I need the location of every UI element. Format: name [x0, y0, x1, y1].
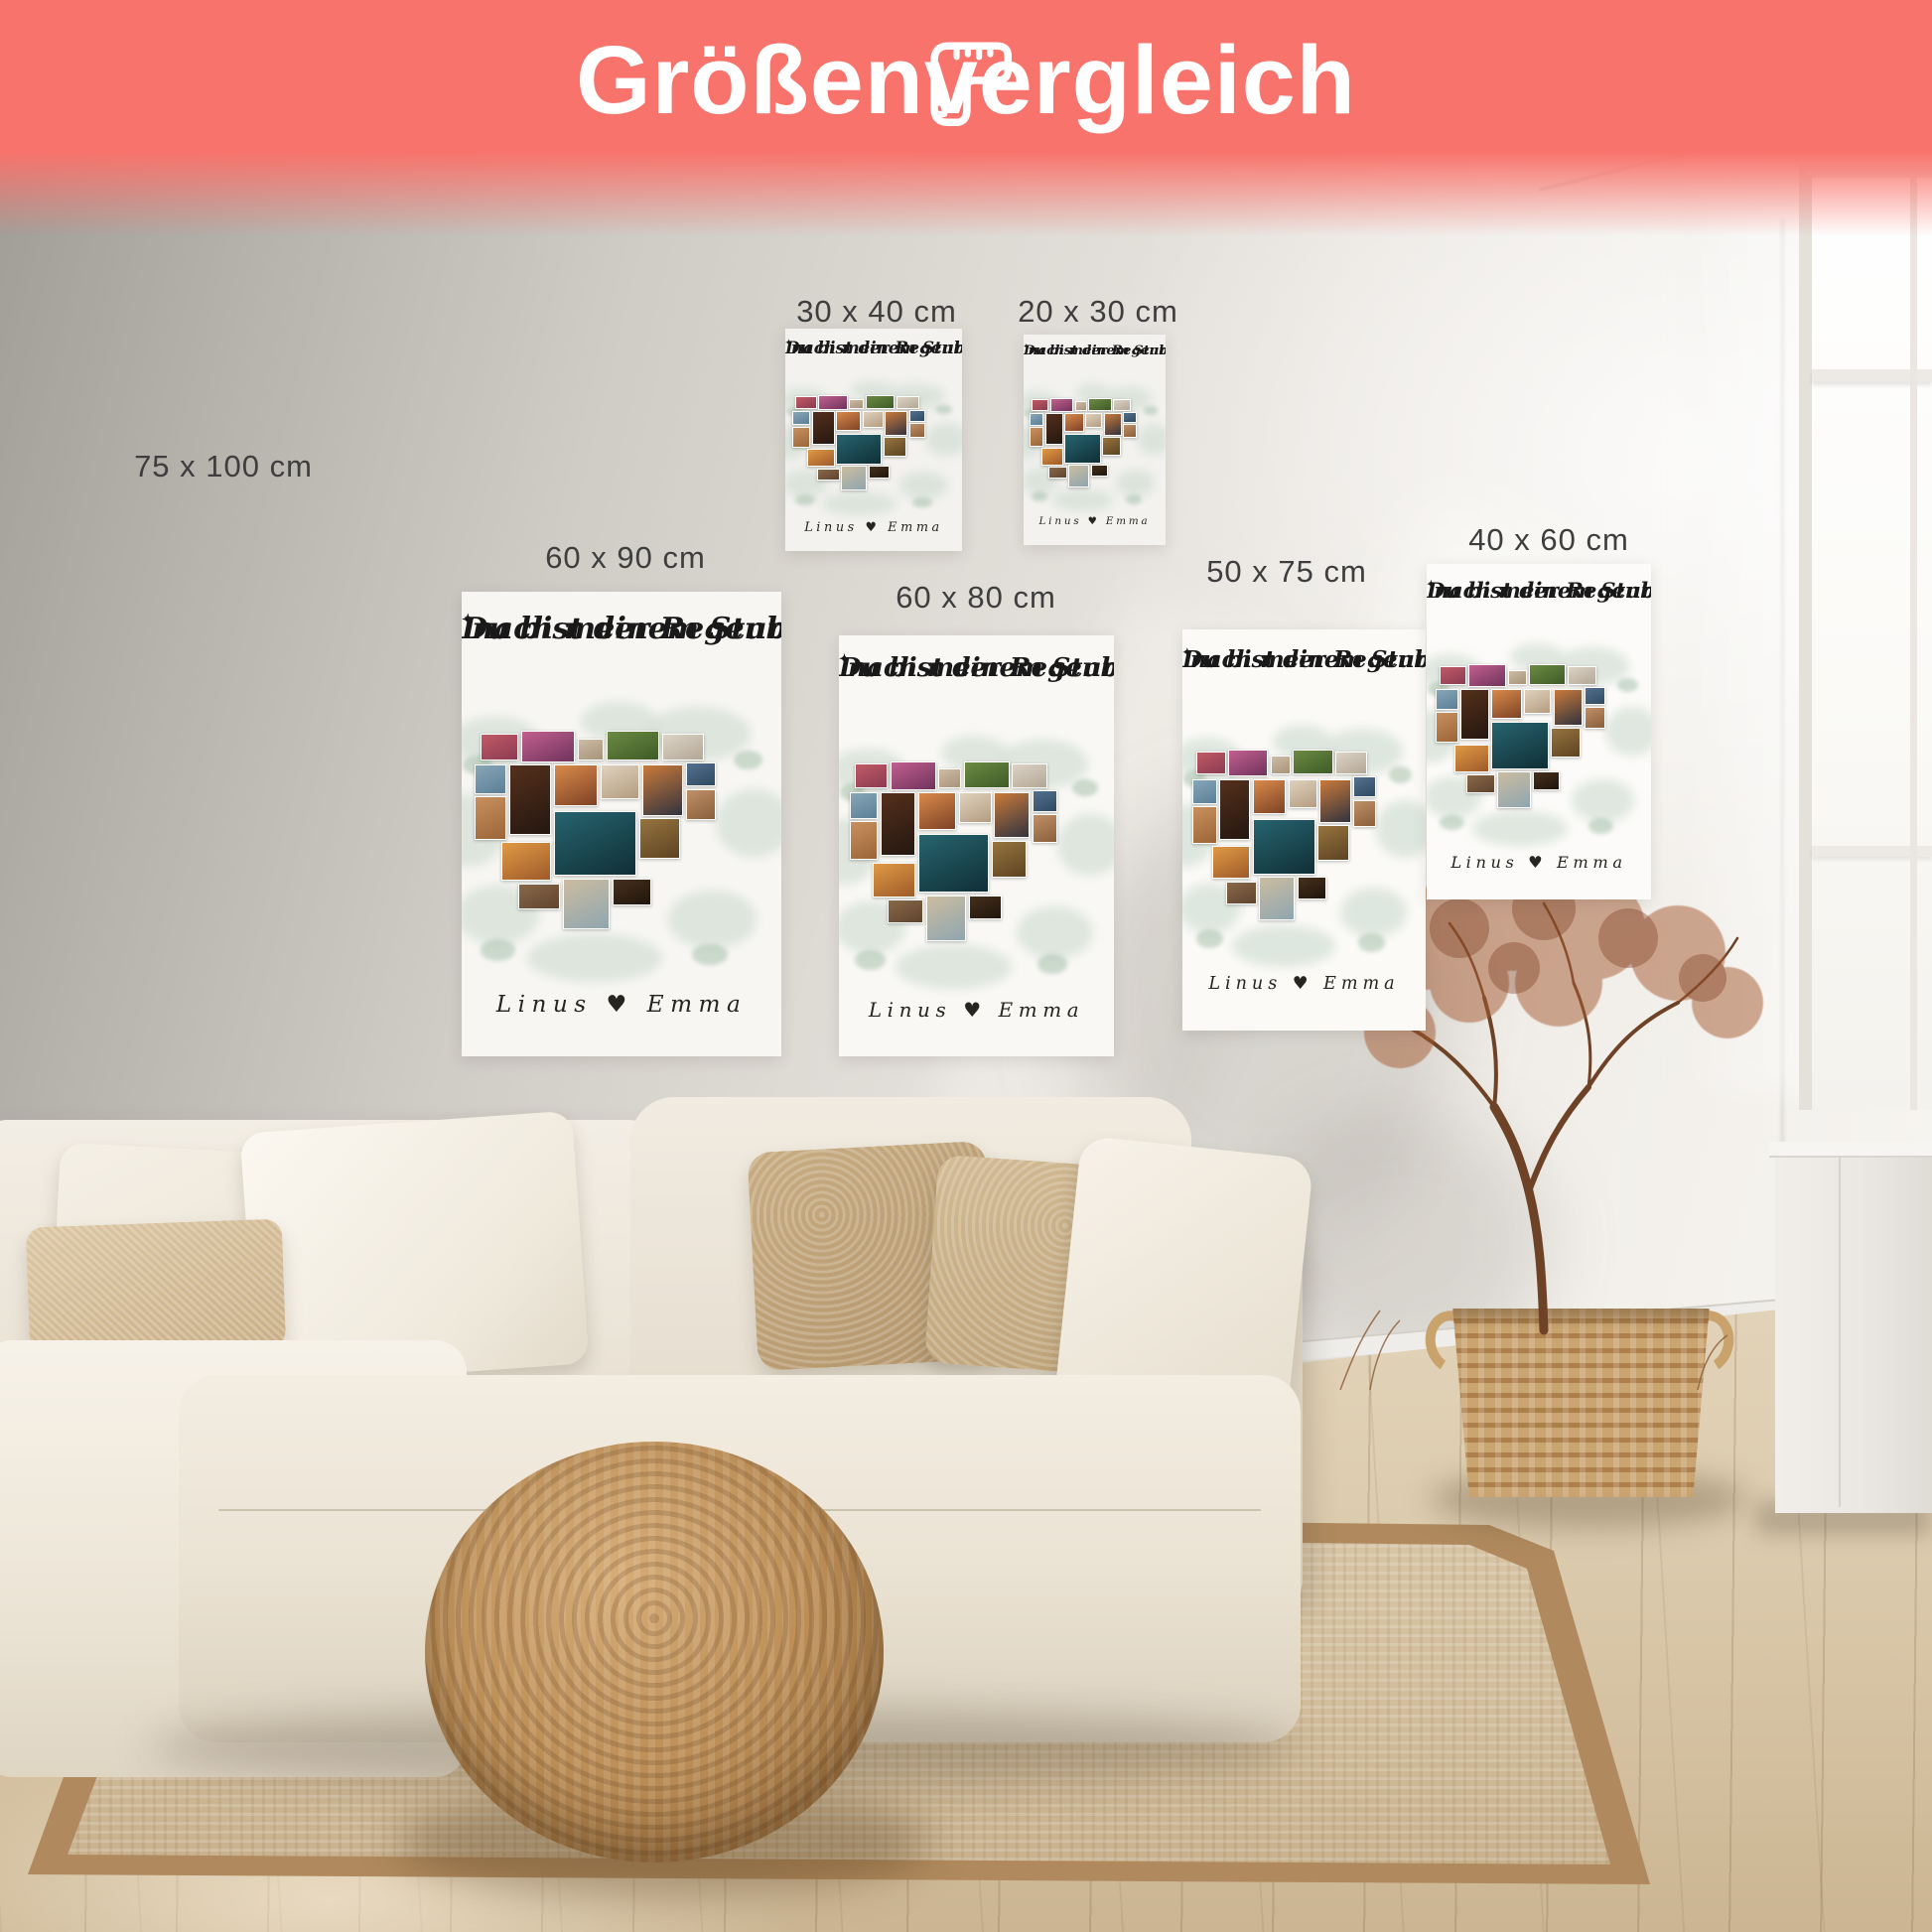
collage-photo-tile	[1196, 752, 1225, 774]
collage-photo-tile	[1088, 398, 1112, 411]
collage-photo-tile	[1585, 707, 1605, 730]
collage-photo-tile	[1068, 465, 1089, 487]
collage-photo-tile	[1440, 666, 1466, 685]
collage-photo-tile	[1030, 413, 1043, 426]
poster-names: Linus ♥ Emma	[1182, 974, 1426, 994]
collage-photo-tile	[1253, 819, 1315, 876]
collage-photo-tile	[918, 834, 989, 894]
collage-photo-tile	[807, 449, 835, 468]
collage-photo-tile	[836, 434, 882, 465]
collage-photo-tile	[662, 734, 703, 760]
collage-photo-tile	[686, 789, 716, 821]
collage-photo-tile	[818, 395, 847, 410]
collage-photo-tile	[1033, 814, 1057, 843]
collage-photo-tile	[1050, 398, 1074, 412]
size-label-60x80: 60 x 80 cm	[896, 580, 1056, 616]
collage-photo-tile	[521, 731, 574, 762]
collage-photo-tile	[792, 427, 810, 448]
collage-photo-tile	[1524, 689, 1551, 714]
collage-photo-tile	[601, 764, 639, 798]
wreath-blob	[1116, 470, 1155, 495]
collage-photo-tile	[909, 410, 925, 422]
wreath-leaf	[1617, 678, 1638, 692]
collage-photo-tile	[1033, 790, 1057, 812]
collage-photo-tile	[613, 879, 651, 905]
collage-photo-tile	[1436, 712, 1458, 744]
size-label-60x90: 60 x 90 cm	[545, 540, 706, 576]
size-label-20x30: 20 x 30 cm	[1018, 294, 1178, 330]
collage-photo-tile	[994, 792, 1030, 838]
banner-title: Größenvergleich	[576, 25, 1356, 136]
collage-photo-tile	[1293, 750, 1333, 774]
heart-photo-collage	[1192, 750, 1416, 958]
collage-photo-tile	[475, 796, 507, 840]
collage-photo-tile	[1091, 465, 1108, 477]
collage-photo-tile	[855, 763, 888, 787]
collage-photo-tile	[1259, 877, 1295, 920]
size-label-40x60: 40 x 60 cm	[1468, 522, 1629, 558]
collage-photo-tile	[863, 411, 884, 427]
wreath-blob	[1376, 800, 1426, 859]
collage-photo-tile	[475, 764, 507, 793]
wreath-leaf	[1037, 954, 1068, 974]
collage-photo-tile	[1032, 399, 1048, 411]
collage-photo-tile	[1219, 779, 1251, 840]
collage-photo-tile	[563, 879, 610, 929]
wreath-blob	[1052, 489, 1113, 511]
wreath-blob	[1232, 925, 1335, 967]
wreath-blob	[1472, 811, 1568, 846]
collage-photo-tile	[481, 734, 519, 760]
collage-photo-tile	[1551, 728, 1580, 758]
collage-photo-tile	[850, 792, 878, 818]
wreath-leaf	[692, 944, 728, 966]
wreath-leaf	[795, 494, 815, 504]
heart-photo-collage	[475, 731, 768, 972]
collage-photo-tile	[1585, 687, 1605, 705]
collage-photo-tile	[1460, 689, 1489, 740]
collage-photo-tile	[1491, 722, 1549, 768]
collage-photo-tile	[918, 792, 956, 829]
sparkle-icon: ✦	[1182, 645, 1192, 660]
collage-photo-tile	[888, 899, 923, 923]
collage-photo-tile	[1123, 424, 1136, 438]
banner-content: Größenvergleich	[0, 0, 1932, 161]
collage-photo-tile	[1298, 877, 1326, 899]
collage-photo-tile	[841, 466, 867, 489]
collage-photo-tile	[1228, 750, 1269, 776]
collage-photo-tile	[1113, 399, 1131, 411]
collage-photo-tile	[866, 395, 895, 409]
collage-photo-tile	[1529, 664, 1566, 685]
wreath-leaf	[1144, 406, 1157, 415]
collage-photo-tile	[926, 896, 967, 941]
collage-photo-tile	[1436, 689, 1458, 710]
collage-photo-tile	[607, 731, 659, 759]
wreath-leaf	[1588, 818, 1613, 834]
collage-photo-tile	[1466, 774, 1495, 793]
collage-photo-tile	[686, 762, 716, 786]
wreath-leaf	[1358, 933, 1385, 952]
collage-photo-tile	[938, 768, 961, 788]
collage-photo-tile	[1289, 779, 1317, 808]
collage-photo-tile	[992, 841, 1028, 878]
heart-photo-collage	[850, 761, 1103, 980]
collage-photo-tile	[897, 396, 919, 409]
sparkle-icon: ✦	[1024, 343, 1030, 351]
sparkle-icon: ✦	[462, 611, 475, 629]
collage-photo-tile	[1102, 437, 1120, 456]
poster-title-line2: ✦ nach meinem Sturm ♥✦	[1427, 578, 1651, 605]
collage-photo-tile	[873, 863, 915, 897]
posters-layer: 75 x 100 cm30 x 40 cmDu bist der Regenbo…	[0, 0, 1932, 1932]
collage-photo-tile	[554, 764, 598, 805]
heart-photo-collage	[792, 395, 955, 510]
sparkle-icon: ✦	[785, 338, 792, 348]
size-comparison-banner: Größenvergleich	[0, 0, 1932, 236]
poster-names: Linus ♥ Emma	[1024, 515, 1166, 527]
collage-photo-tile	[959, 792, 992, 823]
wreath-leaf	[481, 939, 516, 961]
poster-title-line2: ✦ nach meinem Sturm ♥✦	[1182, 645, 1426, 674]
wreath-blob	[716, 789, 781, 857]
collage-photo-tile	[642, 764, 683, 815]
poster-names: Linus ♥ Emma	[785, 520, 962, 535]
collage-photo-tile	[1508, 670, 1527, 686]
poster-names: Linus ♥ Emma	[839, 998, 1114, 1022]
wreath-blob	[668, 891, 757, 948]
collage-photo-tile	[1045, 413, 1063, 445]
collage-photo-tile	[1226, 882, 1258, 904]
collage-photo-tile	[1491, 689, 1522, 719]
collage-photo-tile	[1104, 413, 1122, 436]
collage-photo-tile	[509, 764, 550, 835]
collage-photo-tile	[849, 399, 864, 409]
collage-photo-tile	[518, 884, 559, 910]
wreath-leaf	[1389, 766, 1412, 783]
collage-photo-tile	[1212, 846, 1250, 880]
collage-photo-tile	[1064, 434, 1101, 464]
wreath-blob	[1017, 906, 1092, 959]
poster-30x40: Du bist der Regenbogen✦✦ nach meinem Stu…	[785, 329, 962, 551]
collage-photo-tile	[836, 411, 861, 431]
collage-photo-tile	[1271, 756, 1291, 774]
wreath-leaf	[1126, 494, 1142, 504]
poster-names: Linus ♥ Emma	[462, 991, 781, 1018]
wreath-leaf	[1196, 929, 1223, 948]
collage-photo-tile	[881, 792, 916, 856]
poster-title-line2: ✦ nach meinem Sturm ♥✦	[462, 611, 781, 649]
wreath-leaf	[912, 497, 932, 507]
collage-photo-tile	[795, 396, 816, 409]
size-label-30x40: 30 x 40 cm	[796, 294, 957, 330]
wreath-blob	[822, 492, 897, 515]
poster-title-line2: ✦ nach meinem Sturm ♥✦	[1024, 343, 1166, 359]
collage-photo-tile	[1497, 771, 1530, 808]
wreath-blob	[1572, 779, 1633, 821]
collage-photo-tile	[1353, 776, 1376, 797]
collage-photo-tile	[1012, 763, 1047, 787]
poster-20x30: Du bist der Regenbogen✦✦ nach meinem Stu…	[1024, 335, 1166, 545]
heart-photo-collage	[1436, 664, 1642, 839]
collage-photo-tile	[1075, 401, 1087, 411]
collage-photo-tile	[1253, 779, 1287, 815]
collage-photo-tile	[578, 739, 605, 760]
collage-photo-tile	[1533, 771, 1560, 790]
collage-photo-tile	[1335, 752, 1367, 774]
collage-photo-tile	[792, 411, 810, 425]
heart-photo-collage	[1030, 398, 1161, 507]
collage-photo-tile	[891, 761, 936, 790]
wreath-leaf	[1440, 815, 1464, 831]
collage-photo-tile	[1064, 413, 1084, 432]
wreath-blob	[1137, 424, 1166, 455]
collage-photo-tile	[1454, 745, 1489, 772]
collage-photo-tile	[1030, 427, 1043, 447]
collage-photo-tile	[964, 761, 1010, 787]
collage-photo-tile	[554, 811, 636, 877]
wreath-leaf	[1072, 779, 1097, 797]
wreath-leaf	[1032, 491, 1047, 501]
collage-photo-tile	[1317, 825, 1349, 861]
wreath-blob	[899, 472, 948, 499]
wreath-blob	[1057, 814, 1114, 876]
collage-photo-tile	[501, 842, 551, 881]
size-comparison-scene: 75 x 100 cm30 x 40 cmDu bist der Regenbo…	[0, 0, 1932, 1932]
collage-photo-tile	[812, 411, 835, 445]
poster-60x80: Du bist der Regenbogen✦✦ nach meinem Stu…	[839, 635, 1114, 1056]
collage-photo-tile	[1123, 412, 1136, 423]
wreath-blob	[896, 945, 1012, 989]
collage-photo-tile	[639, 818, 680, 859]
wreath-leaf	[855, 950, 886, 970]
collage-photo-tile	[1041, 448, 1063, 466]
poster-50x75: Du bist der Regenbogen✦✦ nach meinem Stu…	[1182, 629, 1426, 1031]
collage-photo-tile	[1353, 800, 1376, 827]
collage-photo-tile	[1468, 664, 1505, 687]
collage-photo-tile	[884, 437, 906, 457]
collage-photo-tile	[850, 821, 878, 861]
collage-photo-tile	[869, 466, 890, 479]
sparkle-icon: ✦	[1427, 578, 1436, 592]
collage-photo-tile	[1048, 467, 1066, 479]
collage-photo-tile	[1319, 779, 1351, 823]
collage-photo-tile	[1192, 779, 1217, 804]
wreath-blob	[925, 423, 962, 456]
wreath-leaf	[734, 751, 763, 769]
collage-photo-tile	[1554, 689, 1583, 726]
poster-40x60: Du bist der Regenbogen✦✦ nach meinem Stu…	[1427, 564, 1651, 899]
collage-photo-tile	[1085, 413, 1102, 428]
wreath-leaf	[935, 405, 951, 414]
collage-photo-tile	[885, 411, 907, 435]
size-label-75x100: 75 x 100 cm	[134, 449, 313, 484]
wreath-blob	[1605, 707, 1652, 756]
wreath-blob	[1340, 888, 1408, 937]
collage-photo-tile	[909, 423, 925, 438]
collage-photo-tile	[817, 469, 840, 482]
poster-title-line2: ✦ nach meinem Sturm ♥✦	[785, 338, 962, 358]
collage-photo-tile	[1568, 666, 1596, 685]
collage-photo-tile	[1192, 806, 1217, 844]
poster-title-line2: ✦ nach meinem Sturm ♥✦	[839, 652, 1114, 685]
size-label-50x75: 50 x 75 cm	[1206, 554, 1367, 590]
poster-names: Linus ♥ Emma	[1427, 853, 1651, 872]
poster-60x90: Du bist der Regenbogen✦✦ nach meinem Stu…	[462, 592, 781, 1056]
wreath-blob	[527, 934, 662, 983]
collage-photo-tile	[969, 896, 1002, 919]
sparkle-icon: ✦	[839, 652, 850, 669]
